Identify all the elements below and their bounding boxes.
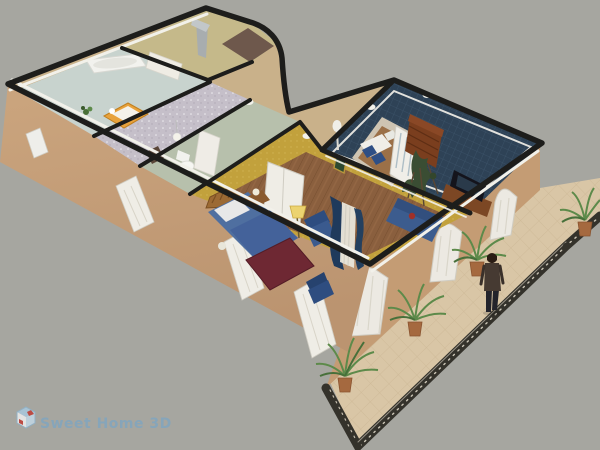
red-cushion — [409, 213, 415, 219]
sweet-home-3d-logo-icon — [17, 407, 35, 428]
table-lamp[interactable] — [253, 189, 260, 196]
3d-view-canvas[interactable]: Sweet Home 3D — [0, 0, 600, 450]
3d-view-viewport[interactable]: Sweet Home 3D — [0, 0, 600, 450]
bed-cushion — [218, 242, 226, 250]
watermark-text: Sweet Home 3D — [40, 416, 172, 432]
